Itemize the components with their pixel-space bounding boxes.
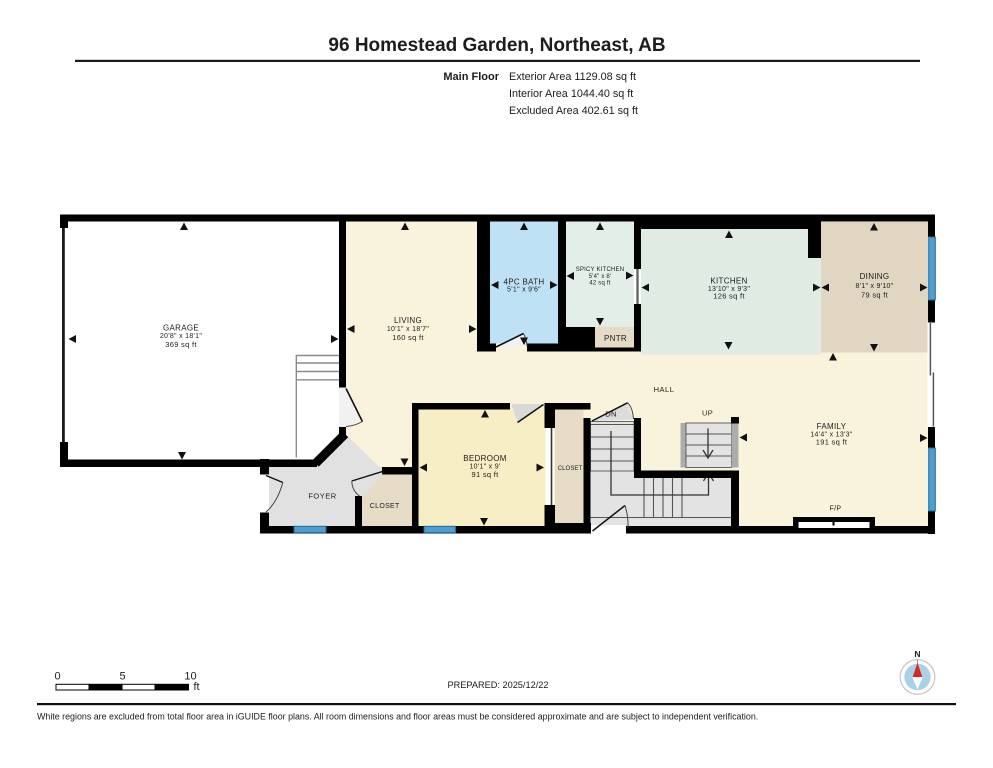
svg-text:CLOSET: CLOSET — [370, 503, 400, 510]
svg-text:4PC BATH: 4PC BATH — [504, 278, 545, 287]
svg-text:5: 5 — [119, 671, 125, 683]
svg-text:DN: DN — [605, 409, 616, 418]
svg-text:FAMILY: FAMILY — [817, 422, 847, 431]
svg-text:126 sq ft: 126 sq ft — [713, 292, 745, 301]
svg-text:96 Homestead Garden, Northeast: 96 Homestead Garden, Northeast, AB — [328, 35, 665, 56]
svg-text:N: N — [914, 649, 920, 659]
svg-text:BEDROOM: BEDROOM — [463, 454, 506, 463]
svg-text:42 sq ft: 42 sq ft — [589, 281, 610, 287]
svg-text:Excluded Area 402.61 sq ft: Excluded Area 402.61 sq ft — [509, 105, 638, 117]
svg-text:Interior Area 1044.40 sq ft: Interior Area 1044.40 sq ft — [509, 88, 633, 100]
svg-text:10'1" x 18'7": 10'1" x 18'7" — [387, 326, 430, 333]
svg-text:Exterior Area 1129.08 sq ft: Exterior Area 1129.08 sq ft — [509, 71, 636, 83]
svg-text:369 sq ft: 369 sq ft — [165, 340, 197, 349]
svg-text:91 sq ft: 91 sq ft — [472, 470, 500, 479]
svg-text:LIVING: LIVING — [394, 316, 422, 325]
svg-text:PREPARED: 2025/12/22: PREPARED: 2025/12/22 — [448, 680, 549, 690]
svg-text:FOYER: FOYER — [308, 491, 336, 500]
svg-text:ft: ft — [194, 681, 200, 693]
svg-text:5'1" x 9'6": 5'1" x 9'6" — [507, 287, 541, 294]
svg-text:191 sq ft: 191 sq ft — [816, 438, 848, 447]
svg-text:HALL: HALL — [654, 385, 675, 394]
svg-text:8'1" x 9'10": 8'1" x 9'10" — [855, 283, 893, 290]
svg-text:20'8" x 18'1": 20'8" x 18'1" — [160, 333, 203, 340]
svg-text:5'4" x 8': 5'4" x 8' — [589, 274, 612, 280]
svg-text:Main Floor: Main Floor — [443, 71, 499, 83]
svg-text:GARAGE: GARAGE — [163, 324, 199, 333]
svg-text:CLOSET: CLOSET — [558, 466, 583, 472]
svg-text:PNTR: PNTR — [604, 334, 627, 343]
svg-text:KITCHEN: KITCHEN — [710, 277, 747, 286]
svg-text:SPICY KITCHEN: SPICY KITCHEN — [576, 267, 625, 273]
svg-text:DINING: DINING — [860, 272, 890, 281]
svg-text:79 sq ft: 79 sq ft — [861, 291, 889, 300]
svg-text:F/P: F/P — [830, 505, 842, 512]
svg-text:160 sq ft: 160 sq ft — [392, 333, 424, 342]
svg-text:White regions are excluded fro: White regions are excluded from total fl… — [37, 712, 758, 722]
svg-text:UP: UP — [702, 408, 713, 417]
svg-text:0: 0 — [54, 671, 60, 683]
